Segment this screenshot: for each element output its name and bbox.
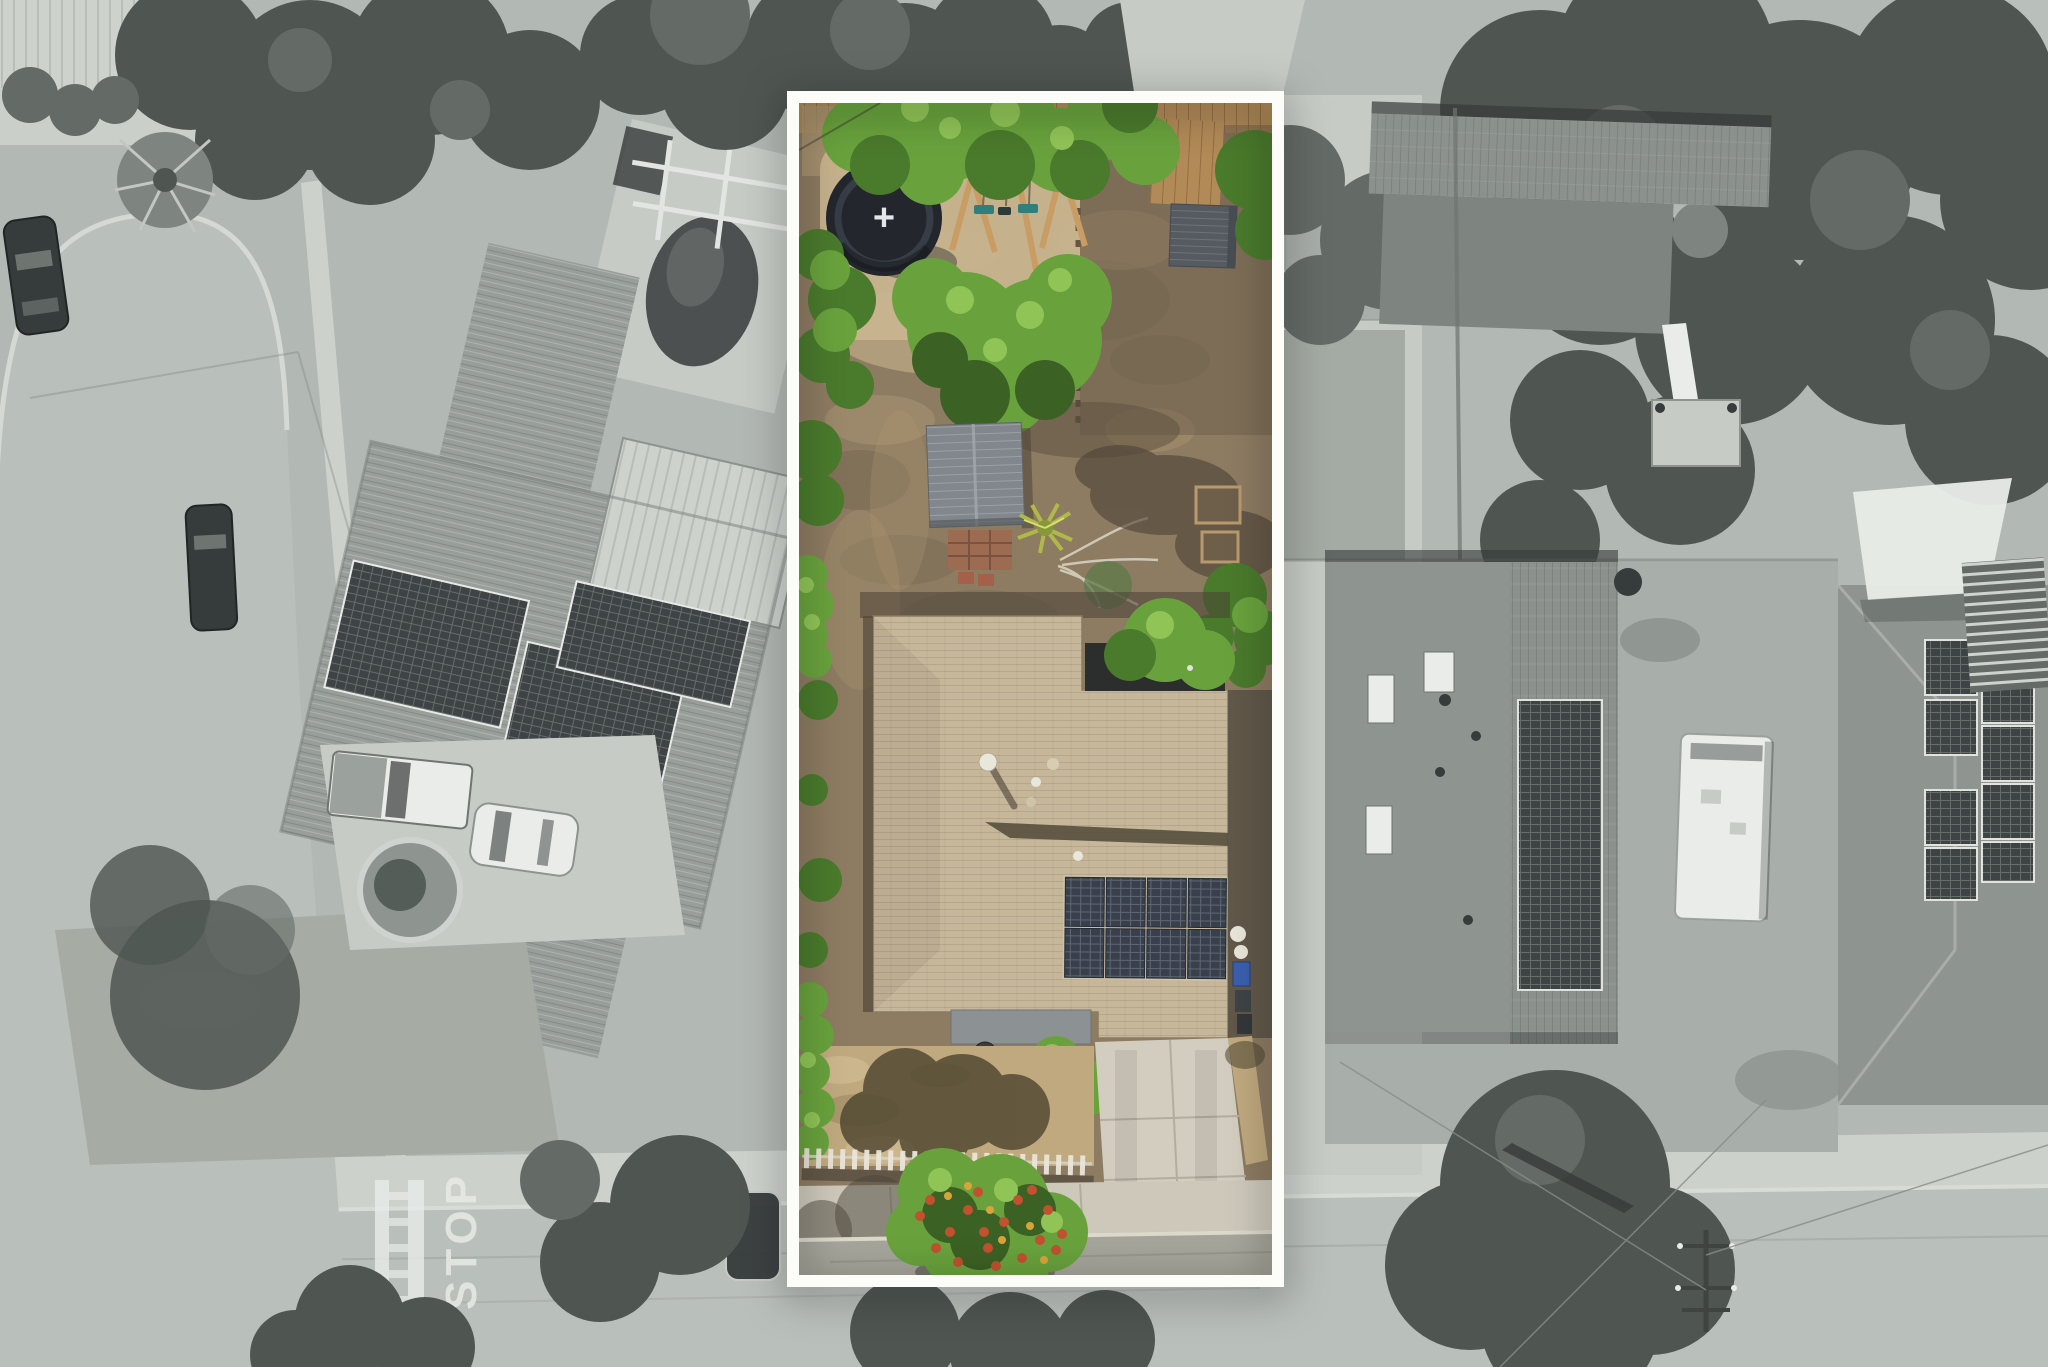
stop-road-marking: STOP [437,1171,486,1310]
storage-shed [1169,204,1237,268]
trampoline-mark: + [873,197,895,239]
highlighted-lot: + [782,75,1295,1300]
rv [1675,734,1774,922]
pergola-lattice [1962,557,2048,692]
dark-bin-2 [1237,1014,1252,1034]
swing-seat-3 [998,207,1011,215]
blue-bin [1233,962,1250,986]
porch-roof [951,1010,1091,1044]
top-right-roof [1369,113,1772,207]
solar-array [1063,875,1228,980]
right-house-left-roof [1325,562,1510,1032]
far-right-house [1838,478,2048,1105]
parked-car-2 [185,504,237,631]
dark-bin-1 [1235,990,1251,1012]
lawn-strip [1280,330,1405,560]
back-patio [1379,194,1673,334]
garden-shed [926,422,1034,532]
planter-bush [374,859,426,911]
white-sedan [468,802,580,878]
main-house [860,592,1235,1038]
swing-seat-1 [974,205,994,214]
swing-seat-2 [1018,204,1038,213]
side-yard-rv [1614,562,1845,1152]
planter-boxes [1196,487,1240,562]
pickup-truck [327,751,473,829]
right-house [1325,550,1618,1144]
satellite-dish [1614,568,1642,596]
aerial-photo: STOP [0,0,2048,1367]
house-side-shadow [863,616,873,1012]
white-bag-1 [1230,926,1246,942]
right-house-solar [1518,700,1602,990]
playset-deck [1652,400,1740,466]
white-bag-2 [1234,945,1248,959]
